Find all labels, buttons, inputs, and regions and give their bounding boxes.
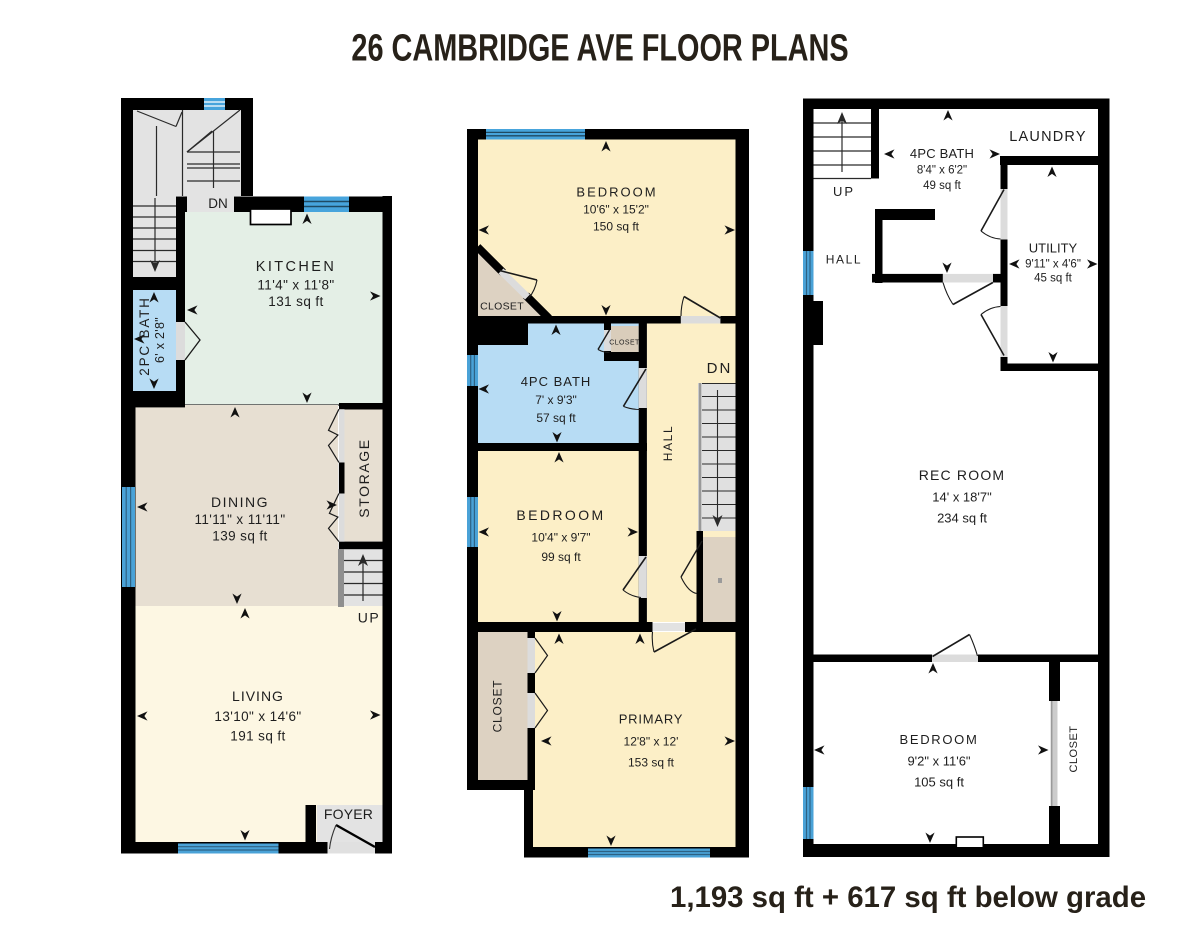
svg-text:BEDROOM: BEDROOM: [516, 507, 605, 523]
svg-text:105 sq ft: 105 sq ft: [914, 775, 964, 790]
svg-text:UTILITY: UTILITY: [1029, 241, 1078, 256]
svg-text:KITCHEN: KITCHEN: [256, 259, 336, 275]
svg-text:7' x 9'3": 7' x 9'3": [535, 393, 577, 407]
svg-text:HALL: HALL: [661, 425, 675, 461]
svg-text:PRIMARY: PRIMARY: [619, 712, 684, 727]
svg-text:1,193 sq ft + 617 sq ft below: 1,193 sq ft + 617 sq ft below grade: [670, 881, 1146, 914]
svg-text:234 sq ft: 234 sq ft: [937, 511, 987, 526]
svg-text:49 sq ft: 49 sq ft: [923, 180, 962, 192]
svg-text:6' x 2'8": 6' x 2'8": [153, 317, 167, 363]
svg-text:26 CAMBRIDGE AVE FLOOR PLANS: 26 CAMBRIDGE AVE FLOOR PLANS: [351, 27, 848, 70]
svg-text:DN: DN: [707, 360, 733, 377]
svg-text:CLOSET: CLOSET: [480, 301, 524, 313]
svg-text:10'6" x 15'2": 10'6" x 15'2": [583, 203, 649, 217]
svg-text:LAUNDRY: LAUNDRY: [1009, 129, 1086, 145]
svg-text:14' x 18'7": 14' x 18'7": [932, 490, 992, 505]
svg-text:139 sq ft: 139 sq ft: [212, 529, 267, 544]
svg-text:191 sq ft: 191 sq ft: [230, 729, 285, 744]
svg-text:45 sq ft: 45 sq ft: [1034, 273, 1073, 285]
svg-text:12'8" x 12': 12'8" x 12': [624, 735, 679, 749]
svg-text:BEDROOM: BEDROOM: [576, 185, 657, 200]
svg-text:DINING: DINING: [211, 494, 269, 510]
svg-text:HALL: HALL: [826, 253, 862, 267]
svg-text:LIVING: LIVING: [232, 688, 284, 704]
svg-text:BEDROOM: BEDROOM: [899, 732, 978, 747]
svg-text:CLOSET: CLOSET: [609, 340, 640, 347]
svg-text:153 sq ft: 153 sq ft: [628, 756, 675, 770]
svg-text:DN: DN: [208, 196, 228, 211]
svg-text:UP: UP: [358, 610, 380, 626]
svg-text:10'4" x 9'7": 10'4" x 9'7": [531, 531, 590, 545]
svg-text:8'4" x 6'2": 8'4" x 6'2": [917, 165, 967, 177]
svg-text:REC ROOM: REC ROOM: [919, 467, 1006, 483]
svg-text:2PC BATH: 2PC BATH: [137, 296, 152, 375]
svg-text:57 sq ft: 57 sq ft: [536, 411, 576, 425]
svg-text:131 sq ft: 131 sq ft: [268, 294, 323, 309]
svg-text:150 sq ft: 150 sq ft: [593, 220, 640, 234]
svg-text:9'2" x 11'6": 9'2" x 11'6": [907, 754, 970, 769]
svg-text:FOYER: FOYER: [324, 806, 373, 822]
svg-text:9'11" x 4'6": 9'11" x 4'6": [1025, 259, 1081, 271]
svg-text:11'4" x 11'8": 11'4" x 11'8": [257, 278, 334, 293]
svg-text:STORAGE: STORAGE: [356, 438, 372, 517]
svg-text:CLOSET: CLOSET: [1068, 725, 1080, 772]
svg-text:99 sq ft: 99 sq ft: [541, 550, 581, 564]
svg-text:UP: UP: [833, 184, 855, 199]
svg-text:11'11" x 11'11": 11'11" x 11'11": [194, 512, 285, 527]
svg-text:4PC BATH: 4PC BATH: [910, 146, 974, 161]
svg-text:13'10" x 14'6": 13'10" x 14'6": [214, 709, 301, 724]
svg-text:CLOSET: CLOSET: [491, 680, 505, 733]
svg-text:4PC BATH: 4PC BATH: [521, 374, 592, 389]
